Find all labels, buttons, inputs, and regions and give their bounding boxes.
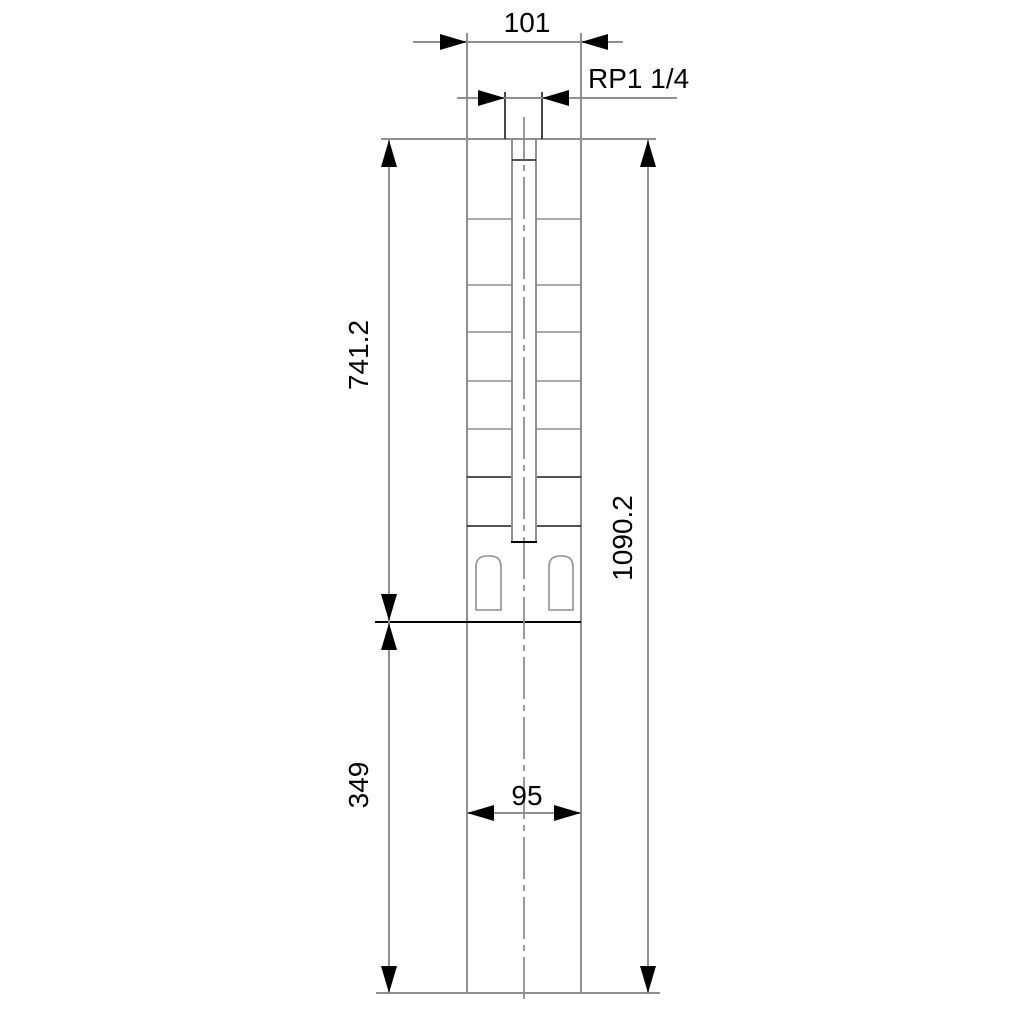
dim-label-bottom-width: 95 [511,780,542,811]
drawing-canvas: 101 RP1 1/4 741.2 349 1090.2 [0,0,1024,1024]
dim-label-lower-length: 349 [343,762,374,809]
technical-drawing: 101 RP1 1/4 741.2 349 1090.2 [0,0,1024,1024]
arrowhead-right-icon [440,34,467,50]
arrowhead-down-icon [381,594,397,621]
arrowhead-down-icon [381,966,397,993]
arrowhead-left-icon [581,34,608,50]
left-dimension-line: 741.2 349 [343,139,397,993]
arrowhead-right-icon [478,90,505,106]
arrowhead-left-icon [542,90,569,106]
cable-guard-slot-left [476,556,501,610]
dim-label-total-length: 1090.2 [607,495,638,581]
dim-top-width: 101 [413,7,623,50]
dim-label-top-width: 101 [504,7,551,38]
dim-thread: RP1 1/4 [457,63,689,106]
dim-label-thread: RP1 1/4 [588,63,689,94]
right-dimension-line: 1090.2 [607,139,656,993]
arrowhead-right-icon [554,805,581,821]
cable-guard-slot-right [549,556,573,610]
arrowhead-down-icon [640,966,656,993]
arrowhead-up-icon [381,623,397,650]
dim-label-upper-length: 741.2 [343,320,374,390]
arrowhead-up-icon [640,140,656,167]
arrowhead-left-icon [467,805,494,821]
arrowhead-up-icon [381,140,397,167]
